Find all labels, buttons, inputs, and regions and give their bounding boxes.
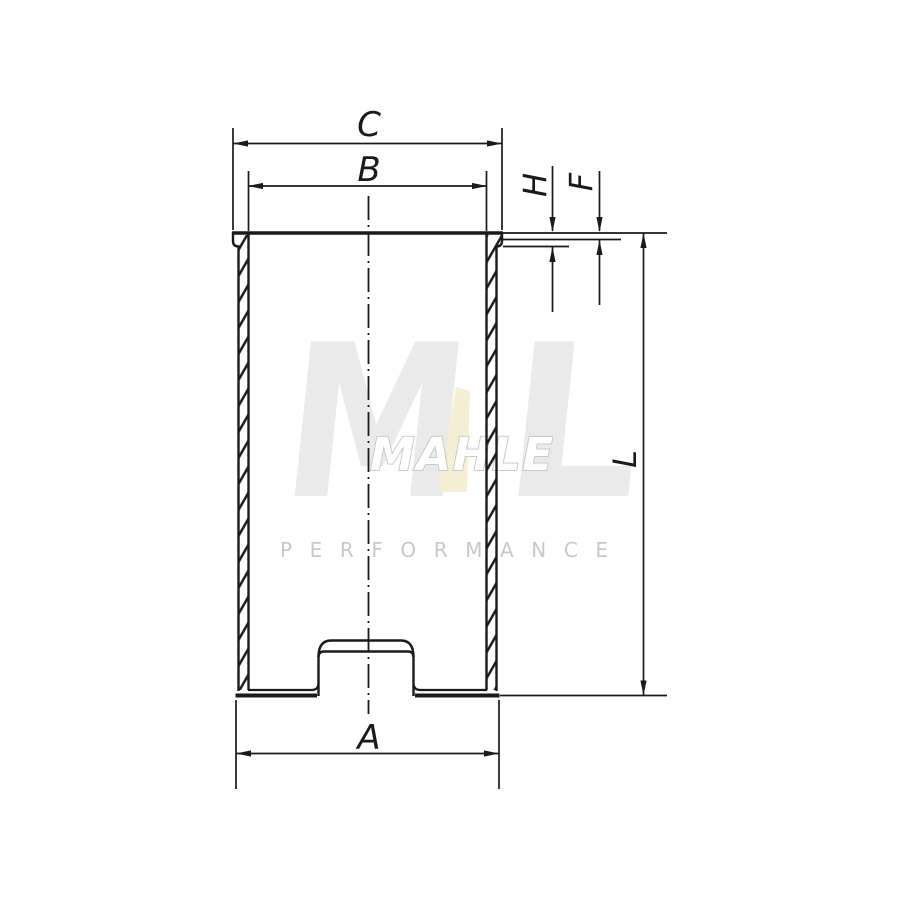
dimension-label-l: L <box>606 450 644 468</box>
watermark-logo-l: L <box>494 301 655 547</box>
hatch-wall-left <box>239 247 249 690</box>
dimension-label-f: F <box>562 172 600 191</box>
dimension-label-c: C <box>357 105 381 145</box>
cylinder-liner-diagram: M L MAHLE PERFORMANCE <box>0 0 900 900</box>
dimension-label-a: A <box>355 718 380 758</box>
dimension-label-h: H <box>516 173 554 197</box>
watermark-brand-text: MAHLE <box>370 428 553 481</box>
dimension-label-b: B <box>357 150 380 190</box>
hatch-wall-right <box>487 247 497 690</box>
watermark-logo-m: M <box>273 299 480 546</box>
product-technical-drawing: M L MAHLE PERFORMANCE <box>0 0 900 900</box>
